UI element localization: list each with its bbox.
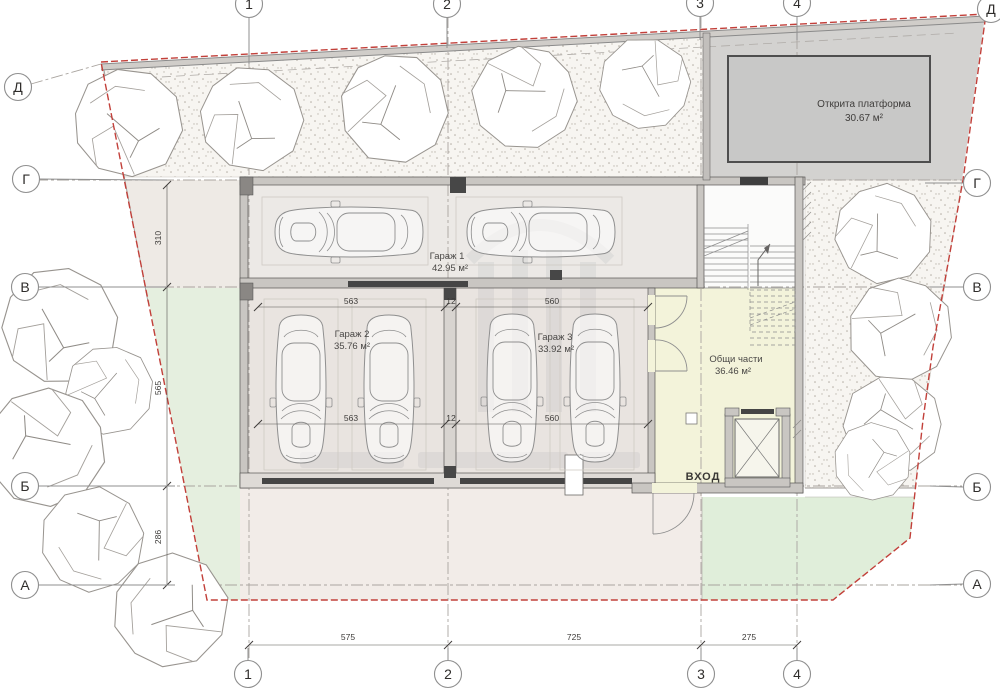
axis-col-4-top: 4	[793, 0, 801, 11]
garage2-door-bar	[262, 478, 434, 484]
open-platform: Открита платформа 30.67 м²	[728, 56, 930, 162]
garage1-area: 42.95 м²	[432, 263, 468, 274]
dim-bottom-1: 575	[341, 632, 355, 642]
dim-left-2: 565	[153, 381, 163, 395]
dim-left-1: 310	[153, 231, 163, 245]
dim-garage-top-1: 563	[344, 296, 358, 306]
dim-garage-bottom-2: 12	[446, 413, 456, 423]
axis-row-d-left: Д	[13, 79, 23, 95]
garage3-label: Гараж 3	[538, 332, 573, 343]
axis-row-b-right: Б	[972, 479, 981, 495]
axis-row-a-right: А	[972, 576, 982, 592]
axis-row-d-right: Д	[986, 1, 996, 17]
garage2-label: Гараж 2	[335, 329, 370, 340]
axis-row-b-left: Б	[20, 478, 29, 494]
site-plan-drawing: Открита платформа 30.67 м²	[0, 0, 1000, 693]
dim-bottom-3: 275	[742, 632, 756, 642]
axis-col-2-top: 2	[443, 0, 451, 12]
garage1-label: Гараж 1	[430, 251, 465, 262]
common-area-symbol	[686, 413, 697, 424]
dim-garage-top-3: 560	[545, 296, 559, 306]
garage-divider-wall	[444, 288, 456, 478]
axis-row-v-right: В	[972, 279, 981, 295]
garage1-door-bar	[348, 281, 468, 287]
axis-row-a-left: А	[20, 577, 30, 593]
garage2-area: 35.76 м²	[334, 341, 370, 352]
platform-label: Открита платформа	[817, 98, 911, 110]
platform-west-wall	[703, 33, 710, 180]
floor-plan-canvas: Открита платформа 30.67 м²	[0, 0, 1000, 693]
apron-south	[240, 488, 702, 600]
entrance-opening	[652, 483, 697, 493]
axis-col-2-bottom: 2	[444, 666, 452, 682]
north-wall	[240, 177, 805, 185]
east-wall	[795, 177, 803, 493]
axis-col-4-bottom: 4	[793, 666, 801, 682]
garage3-door-bar	[460, 478, 632, 484]
stair-west-wall	[697, 185, 704, 288]
platform-area: 30.67 м²	[845, 113, 884, 124]
lawn-left	[146, 288, 240, 600]
axis-col-3-bottom: 3	[697, 666, 705, 682]
dim-garage-top-2: 12	[446, 296, 456, 306]
dim-left-3: 286	[153, 530, 163, 544]
dim-bottom-2: 725	[567, 632, 581, 642]
axis-col-3-top: 3	[696, 0, 704, 11]
garage3-area: 33.92 м²	[538, 344, 574, 355]
stair-window	[740, 177, 768, 185]
mid-wall	[240, 278, 704, 288]
driveway-left	[124, 180, 240, 288]
dim-garage-bottom-3: 560	[545, 413, 559, 423]
axis-col-1-top: 1	[245, 0, 253, 12]
common-area-value: 36.46 м²	[715, 366, 751, 377]
axis-row-v-left: В	[20, 279, 29, 295]
axis-col-1-bottom: 1	[244, 666, 252, 682]
axis-row-g-left: Г	[22, 171, 30, 187]
axis-row-g-right: Г	[973, 175, 981, 191]
west-wall	[240, 177, 248, 488]
common-label: Общи части	[709, 354, 762, 365]
entrance-label: ВХОД	[686, 471, 721, 483]
dim-garage-bottom-1: 563	[344, 413, 358, 423]
stairwell-floor	[704, 185, 795, 288]
